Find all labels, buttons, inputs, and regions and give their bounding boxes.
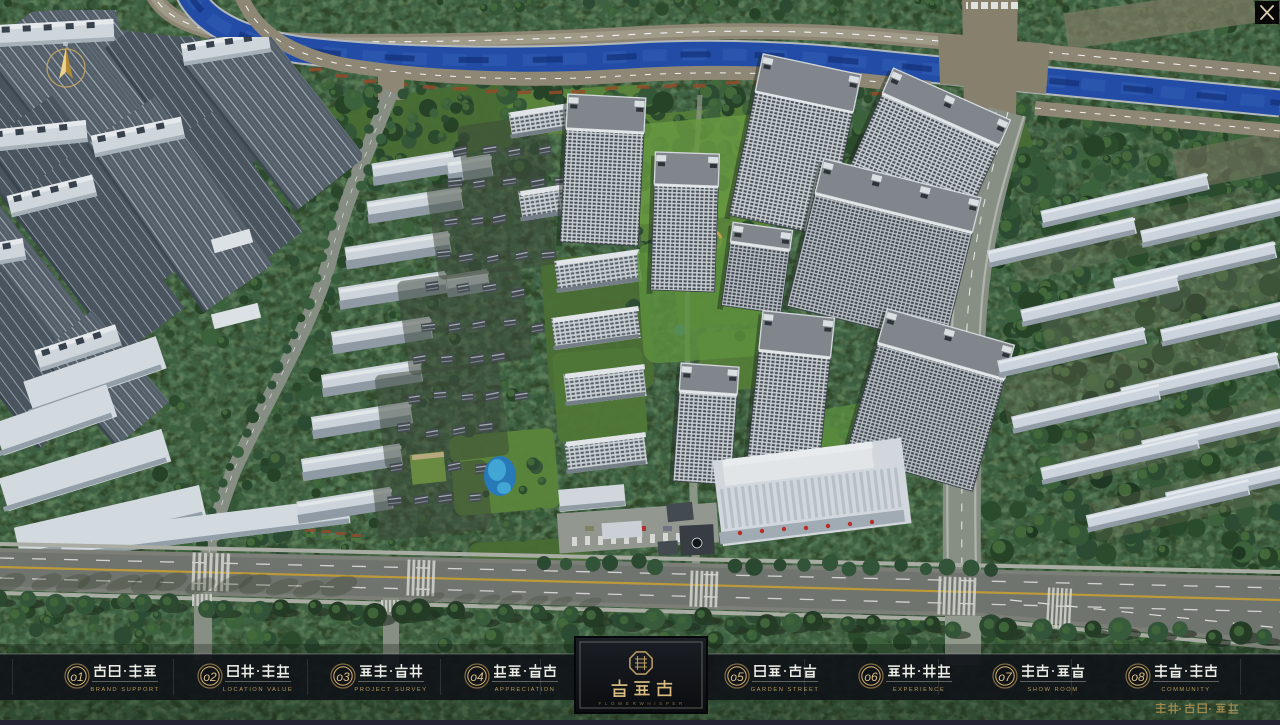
svg-text:COMMUNITY: COMMUNITY xyxy=(1161,687,1210,693)
svg-text:BRAND SUPPORT: BRAND SUPPORT xyxy=(90,687,159,693)
svg-text:F L O W E R W H I S P E R: F L O W E R W H I S P E R xyxy=(598,701,683,706)
svg-text:o4: o4 xyxy=(470,670,484,684)
svg-text:LOCATION VALUE: LOCATION VALUE xyxy=(223,687,293,693)
svg-text:EXPERIENCE: EXPERIENCE xyxy=(893,687,945,693)
svg-text:o3: o3 xyxy=(336,670,350,684)
svg-text:o1: o1 xyxy=(70,670,83,684)
svg-text:o2: o2 xyxy=(203,670,217,684)
svg-text:APPRECIATION: APPRECIATION xyxy=(495,687,556,693)
svg-text:o7: o7 xyxy=(998,670,1013,684)
svg-text:PROJECT SURVEY: PROJECT SURVEY xyxy=(354,687,427,693)
svg-text:o8: o8 xyxy=(1131,670,1145,684)
svg-text:o6: o6 xyxy=(864,670,878,684)
svg-text:SHOW ROOM: SHOW ROOM xyxy=(1027,687,1078,693)
svg-text:GARDEN STREET: GARDEN STREET xyxy=(751,687,820,693)
svg-text:o5: o5 xyxy=(730,670,744,684)
